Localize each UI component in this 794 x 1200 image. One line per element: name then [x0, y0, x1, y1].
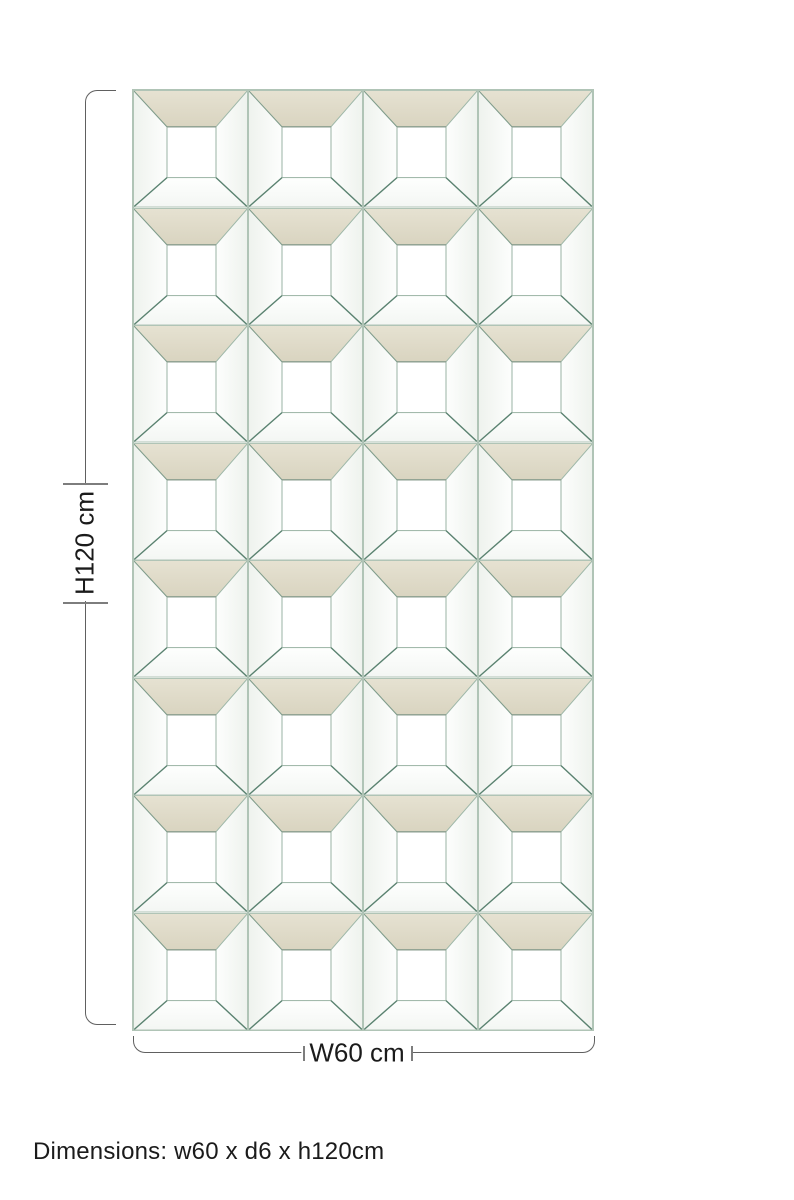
panel-tile — [478, 208, 593, 326]
panel-tile — [133, 90, 248, 208]
panel-tile — [478, 678, 593, 796]
height-tick-top — [63, 483, 108, 485]
panel-tile — [478, 325, 593, 443]
panel-tile — [363, 443, 478, 561]
dimensions-caption: Dimensions: w60 x d6 x h120cm — [33, 1138, 384, 1166]
width-tick-right — [411, 1046, 413, 1061]
height-tick-bottom — [63, 602, 108, 604]
panel-tile — [133, 795, 248, 913]
panel-tile — [248, 325, 363, 443]
height-dimension-label: H120 cm — [63, 485, 108, 601]
panel-tile — [478, 913, 593, 1031]
panel-tile — [133, 443, 248, 561]
panel-tile — [133, 678, 248, 796]
panel-tile — [363, 795, 478, 913]
panel-tile — [363, 913, 478, 1031]
panel-grid — [133, 90, 593, 1030]
panel-tile — [478, 443, 593, 561]
width-dimension-label: W60 cm — [301, 1037, 412, 1070]
product-dimension-diagram: H120 cm W60 cm Dimensions: w60 x d6 x h1… — [0, 0, 794, 1200]
panel-tile — [248, 443, 363, 561]
panel-tile — [248, 90, 363, 208]
panel-tile — [248, 560, 363, 678]
panel-tile — [133, 208, 248, 326]
panel-tile — [248, 678, 363, 796]
panel-tile — [133, 913, 248, 1031]
panel-tile — [133, 560, 248, 678]
panel-tile — [478, 90, 593, 208]
panel-tile — [363, 208, 478, 326]
panel-tile — [248, 913, 363, 1031]
panel-tile — [363, 325, 478, 443]
panel-tile — [248, 795, 363, 913]
panel-tile — [363, 678, 478, 796]
width-tick-left — [303, 1046, 305, 1061]
panel-tile — [133, 325, 248, 443]
panel-tile — [248, 208, 363, 326]
panel-tile — [363, 90, 478, 208]
panel-tile — [478, 560, 593, 678]
panel-tile — [363, 560, 478, 678]
panel-tile — [478, 795, 593, 913]
